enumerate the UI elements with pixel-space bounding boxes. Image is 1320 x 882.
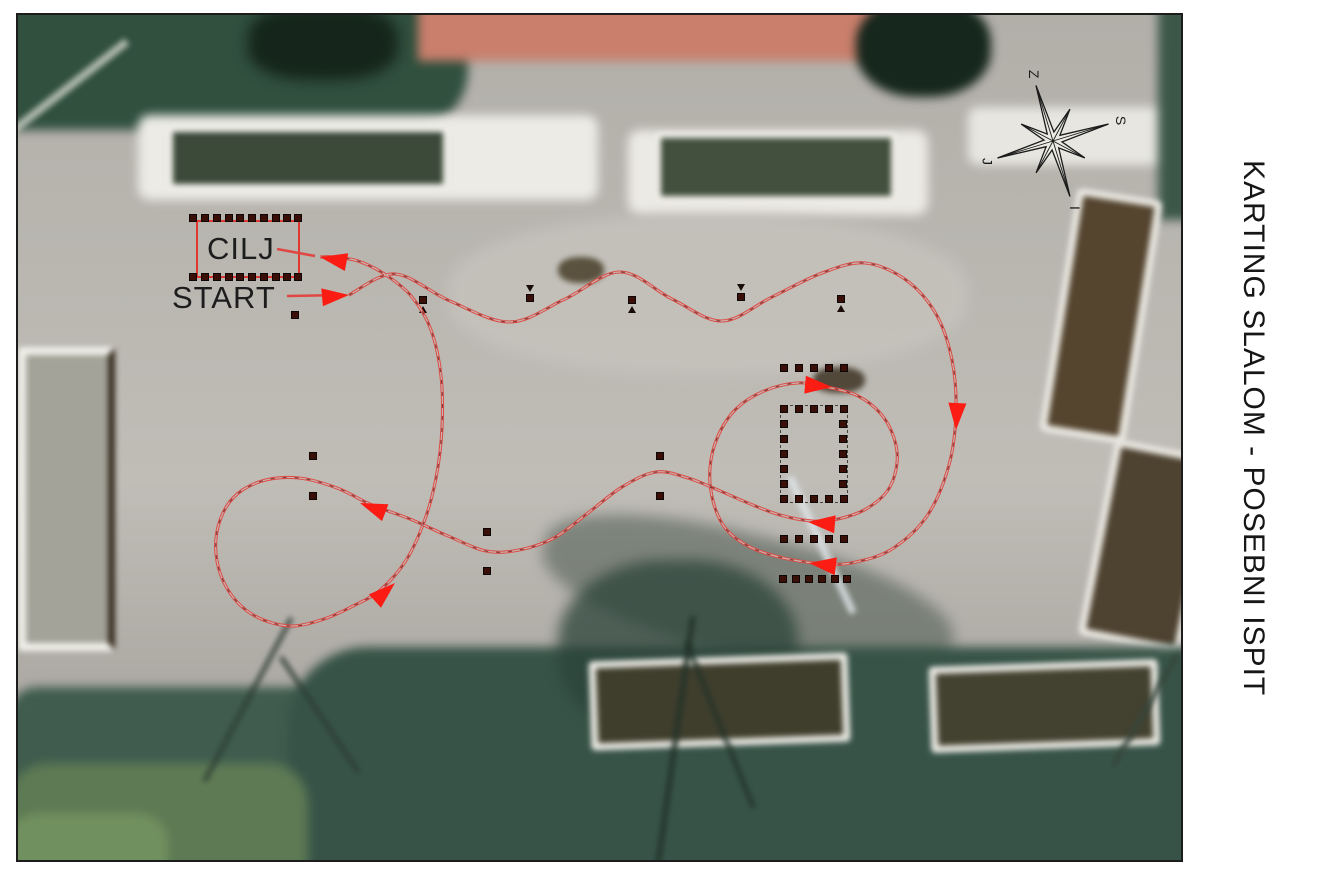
cone-garage-right xyxy=(839,420,847,428)
cone-row-above-garage xyxy=(795,364,803,372)
cone-garage-bottom xyxy=(795,495,803,503)
cone-row-above-garage xyxy=(840,364,848,372)
cone-row-bottom xyxy=(818,575,826,583)
hedge-block-right xyxy=(656,133,896,201)
cone-row-above-garage xyxy=(780,364,788,372)
cone-slalom xyxy=(419,296,427,304)
page-title: KARTING SLALOM - POSEBNI ISPIT xyxy=(1224,156,1270,701)
cone-finish-row-top xyxy=(248,214,256,222)
cone-finish-row-top xyxy=(283,214,291,222)
cone-slalom xyxy=(628,296,636,304)
cone-finish-row-top xyxy=(225,214,233,222)
cone-garage-right xyxy=(839,480,847,488)
cone-finish-row-bottom xyxy=(294,273,302,281)
cone-row-below-garage xyxy=(795,535,803,543)
vegetation-corner-light xyxy=(16,813,168,862)
cone-row-bottom xyxy=(805,575,813,583)
cone-garage-bottom xyxy=(840,495,848,503)
cone-garage-right xyxy=(839,465,847,473)
cone-slalom xyxy=(526,294,534,302)
cone-garage-left xyxy=(780,420,788,428)
cone-singles xyxy=(309,492,317,500)
cone-row-above-garage xyxy=(810,364,818,372)
cone-direction-mark-icon xyxy=(526,285,534,292)
cone-row-below-garage xyxy=(780,535,788,543)
tree-top-center xyxy=(856,13,991,97)
cone-garage-top xyxy=(840,405,848,413)
cone-finish-row-top xyxy=(213,214,221,222)
hedge-block-left xyxy=(168,127,448,189)
cone-singles xyxy=(309,452,317,460)
cone-garage-outline xyxy=(780,405,848,503)
cone-singles xyxy=(291,311,299,319)
planter-strip-right-1 xyxy=(1039,188,1162,444)
cone-garage-bottom xyxy=(780,495,788,503)
cone-row-below-garage xyxy=(825,535,833,543)
cone-garage-top xyxy=(825,405,833,413)
start-label: START xyxy=(172,280,276,316)
cone-singles xyxy=(483,528,491,536)
snow-patch-top-right xyxy=(968,107,1183,165)
tree-shadow-top-left xyxy=(248,13,398,80)
cone-garage-right xyxy=(839,435,847,443)
vegetation-right-edge xyxy=(1158,13,1183,220)
karting-slalom-course-sheet: ZSIJ CILJ START KARTING SLALOM - POSEBNI… xyxy=(0,0,1320,882)
cone-row-below-garage xyxy=(810,535,818,543)
cone-singles xyxy=(656,492,664,500)
planter-left xyxy=(18,347,115,651)
cone-singles xyxy=(656,452,664,460)
cone-finish-row-top xyxy=(260,214,268,222)
cone-garage-right xyxy=(839,450,847,458)
building-roof xyxy=(418,13,888,61)
cone-slalom xyxy=(837,295,845,303)
aerial-photo xyxy=(16,13,1183,862)
cone-garage-left xyxy=(780,465,788,473)
cone-row-bottom xyxy=(792,575,800,583)
cone-row-below-garage xyxy=(840,535,848,543)
cone-finish-row-top xyxy=(236,214,244,222)
cone-garage-left xyxy=(780,435,788,443)
cone-garage-top xyxy=(810,405,818,413)
cone-row-bottom xyxy=(843,575,851,583)
cone-finish-row-top xyxy=(189,214,197,222)
cone-finish-row-top xyxy=(294,214,302,222)
cone-garage-top xyxy=(795,405,803,413)
finish-label: CILJ xyxy=(207,231,275,267)
cone-garage-top xyxy=(780,405,788,413)
cone-finish-row-top xyxy=(272,214,280,222)
cone-direction-mark-icon xyxy=(628,306,636,313)
cone-row-bottom xyxy=(831,575,839,583)
cone-singles xyxy=(483,567,491,575)
cone-row-above-garage xyxy=(825,364,833,372)
cone-row-bottom xyxy=(779,575,787,583)
pavement-smudge-2 xyxy=(813,367,865,393)
cone-garage-bottom xyxy=(810,495,818,503)
planter-bottom-1 xyxy=(589,653,851,751)
cone-garage-left xyxy=(780,480,788,488)
cone-garage-bottom xyxy=(825,495,833,503)
planter-strip-right-2 xyxy=(1078,439,1183,654)
cone-direction-mark-icon xyxy=(419,306,427,313)
pavement-smudge-1 xyxy=(558,257,604,283)
cone-finish-row-top xyxy=(201,214,209,222)
cone-direction-mark-icon xyxy=(737,284,745,291)
cone-garage-left xyxy=(780,450,788,458)
cone-finish-row-bottom xyxy=(283,273,291,281)
cone-direction-mark-icon xyxy=(837,305,845,312)
cone-slalom xyxy=(737,293,745,301)
